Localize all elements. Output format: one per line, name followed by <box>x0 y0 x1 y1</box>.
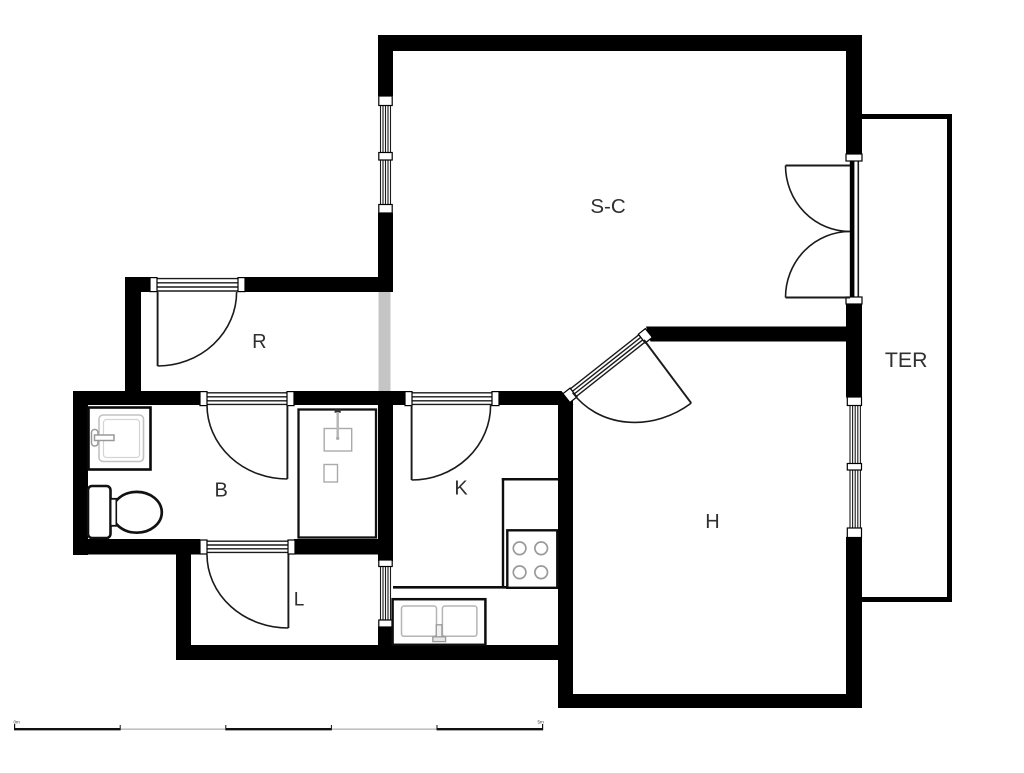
svg-text:B: B <box>215 480 228 502</box>
svg-text:H: H <box>705 511 719 533</box>
svg-text:R: R <box>252 331 266 353</box>
svg-text:TER: TER <box>885 348 928 372</box>
svg-text:0m: 0m <box>14 720 21 725</box>
svg-text:K: K <box>454 478 468 500</box>
svg-text:5m: 5m <box>538 720 545 725</box>
svg-text:S-C: S-C <box>590 195 626 218</box>
svg-text:L: L <box>294 590 305 611</box>
